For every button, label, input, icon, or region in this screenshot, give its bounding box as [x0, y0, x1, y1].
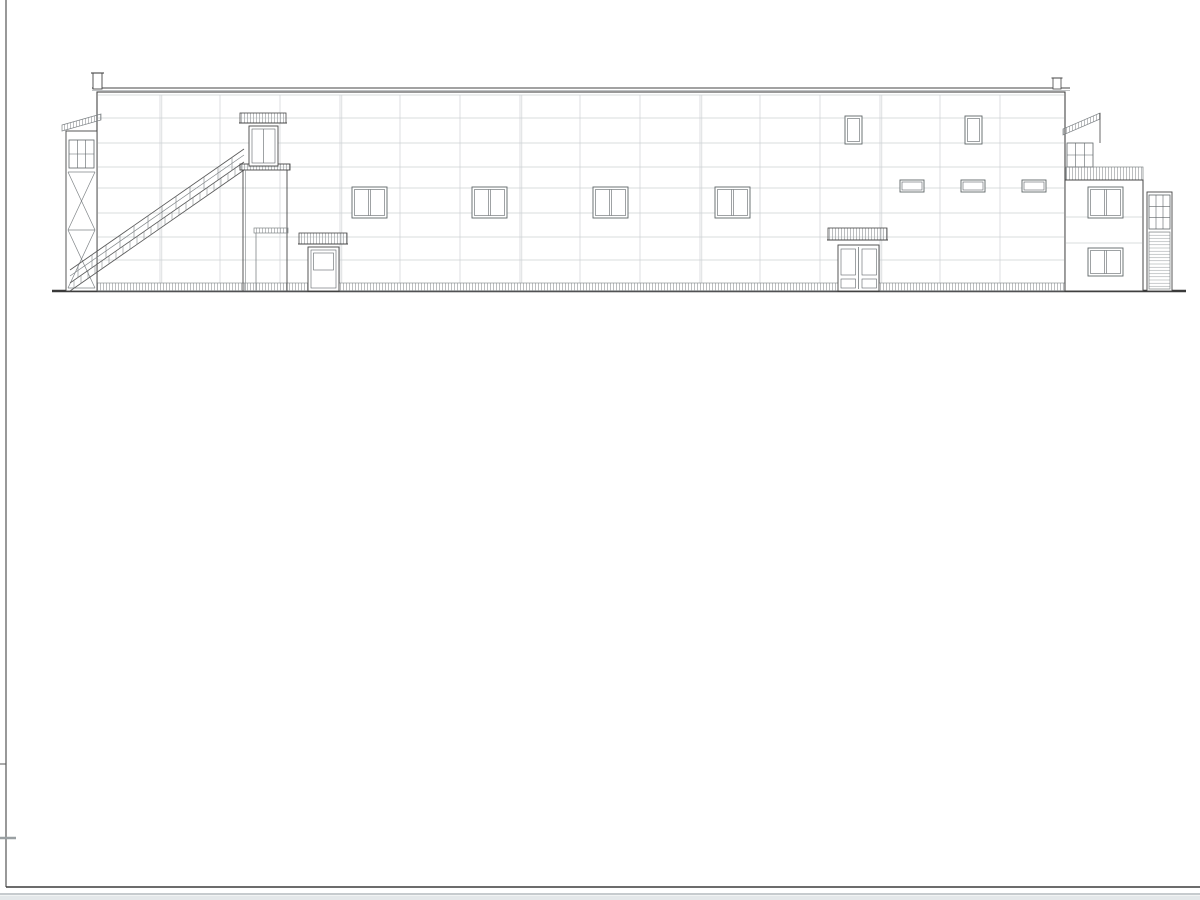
facade-drawing-canvas — [0, 0, 1200, 900]
facade-1-13 — [52, 73, 1186, 291]
drawing-sheet — [0, 0, 1200, 900]
